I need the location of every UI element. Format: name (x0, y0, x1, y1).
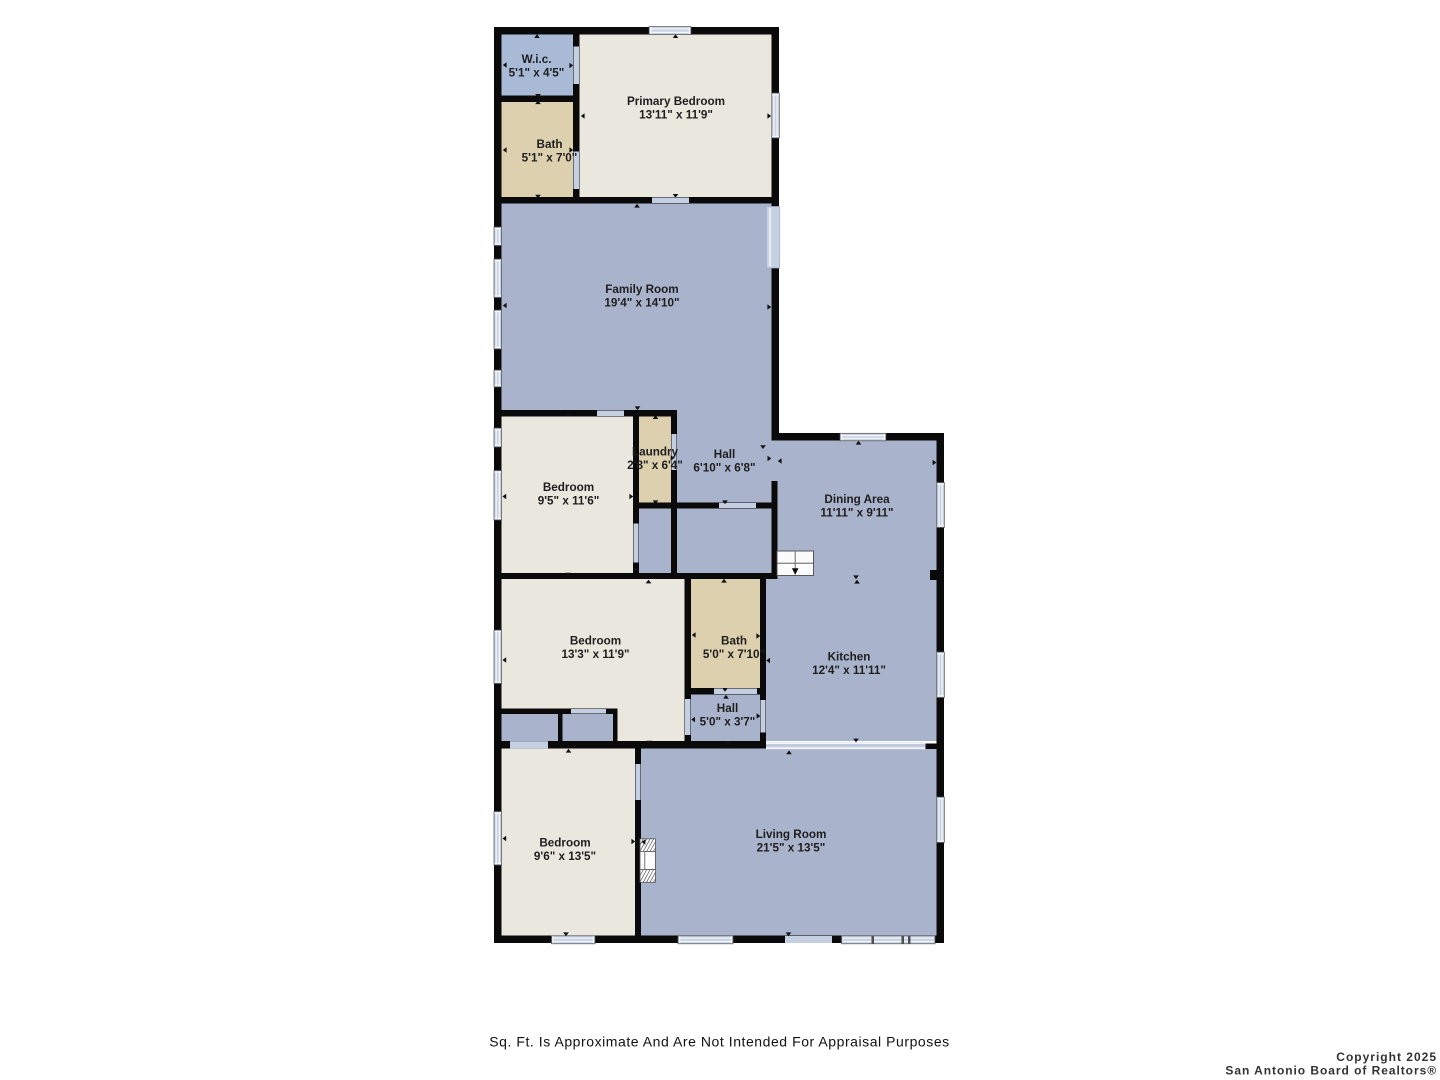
svg-text:12'4" x 11'11": 12'4" x 11'11" (812, 664, 886, 677)
svg-text:Laundry: Laundry (632, 446, 679, 459)
svg-text:13'3" x 11'9": 13'3" x 11'9" (562, 648, 630, 661)
svg-text:Family Room: Family Room (605, 283, 678, 296)
svg-text:Kitchen: Kitchen (828, 651, 871, 664)
svg-text:11'11" x 9'11": 11'11" x 9'11" (820, 506, 893, 519)
svg-text:6'10" x 6'8": 6'10" x 6'8" (693, 462, 755, 475)
svg-text:Hall: Hall (717, 702, 738, 715)
svg-text:19'4" x 14'10": 19'4" x 14'10" (604, 297, 679, 310)
svg-text:W.i.c.: W.i.c. (522, 53, 552, 66)
svg-text:5'1" x 4'5": 5'1" x 4'5" (509, 67, 565, 80)
svg-text:Living Room: Living Room (756, 828, 827, 841)
svg-text:Dining Area: Dining Area (824, 493, 890, 506)
svg-text:Sq. Ft. Is Approximate And Are: Sq. Ft. Is Approximate And Are Not Inten… (489, 1034, 949, 1050)
svg-text:21'5" x 13'5": 21'5" x 13'5" (757, 842, 826, 855)
svg-text:Bedroom: Bedroom (570, 635, 621, 648)
svg-text:Copyright 2025: Copyright 2025 (1336, 1050, 1437, 1064)
svg-text:9'5" x 11'6": 9'5" x 11'6" (538, 495, 600, 508)
svg-text:Bedroom: Bedroom (543, 481, 594, 494)
svg-text:San Antonio Board of Realtors®: San Antonio Board of Realtors® (1225, 1064, 1437, 1078)
svg-text:Primary Bedroom: Primary Bedroom (627, 95, 725, 108)
svg-text:Bath: Bath (721, 635, 747, 648)
svg-text:5'0" x 7'10": 5'0" x 7'10" (703, 648, 765, 661)
svg-text:5'0" x 3'7": 5'0" x 3'7" (700, 716, 756, 729)
svg-text:Hall: Hall (714, 448, 735, 461)
svg-text:13'11" x 11'9": 13'11" x 11'9" (639, 109, 713, 122)
svg-text:Bath: Bath (537, 138, 563, 151)
svg-text:5'1" x 7'0": 5'1" x 7'0" (522, 152, 578, 165)
svg-text:2'8" x 6'4": 2'8" x 6'4" (627, 459, 683, 472)
svg-text:Bedroom: Bedroom (539, 837, 590, 850)
svg-text:9'6" x 13'5": 9'6" x 13'5" (534, 850, 596, 863)
